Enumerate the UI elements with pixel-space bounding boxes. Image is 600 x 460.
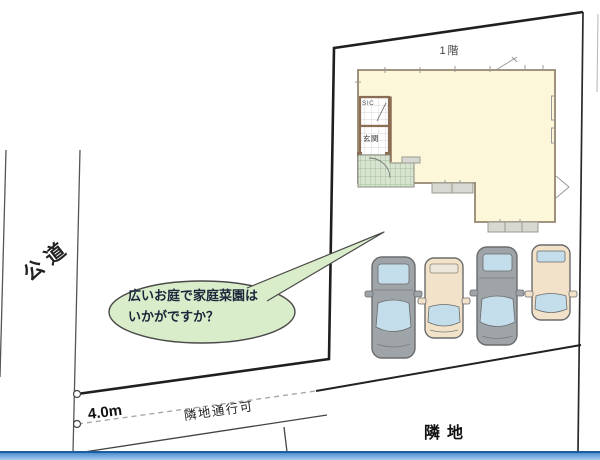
boundary-point-upper	[74, 391, 81, 398]
site-plan-drawing	[0, 0, 600, 460]
floor-label: 1階	[430, 42, 470, 58]
car	[470, 247, 524, 345]
car	[365, 257, 422, 358]
porch-step	[402, 157, 420, 163]
terrace-step-bottom	[488, 222, 538, 232]
neighbor-lot-tick	[284, 427, 287, 452]
bay-window-mark	[556, 176, 569, 198]
boundary-point-lower	[74, 421, 81, 428]
callout-text: 広いお庭で家庭菜園は いかがですか？	[128, 289, 298, 323]
site-plan: 1階 公道 4.0m 隣地通行可 隣地 SIC 玄関 広いお庭で家庭菜園は いか…	[0, 0, 600, 460]
callout-line-1: 広いお庭で家庭菜園は	[128, 289, 298, 302]
car	[525, 245, 577, 320]
callout-line-2: いかがですか？	[128, 310, 298, 323]
shoe-closet-label: SIC	[362, 100, 374, 107]
car	[418, 258, 470, 338]
neighbor-land-label: 隣地	[424, 419, 470, 443]
site-boundary-bottom	[316, 345, 581, 391]
edge-line-top-right	[597, 14, 598, 92]
footer-bar	[0, 451, 600, 460]
entrance-label: 玄関	[363, 133, 379, 144]
road-edge-right	[73, 150, 80, 452]
roof-corner-mark	[496, 57, 517, 70]
site-boundary-right	[578, 12, 583, 452]
house-first-floor	[355, 57, 569, 232]
road-edge-left	[0, 150, 6, 377]
